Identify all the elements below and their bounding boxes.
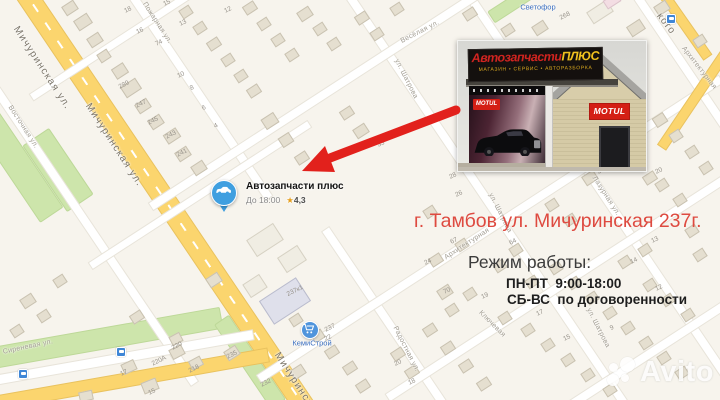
building [246,223,284,257]
building [654,178,670,193]
building [462,287,478,302]
store-marker[interactable] [211,180,237,206]
photo-ground [458,167,646,171]
building [294,150,310,165]
motul-logo: MOTUL [473,99,500,110]
building [78,390,94,400]
building [259,277,311,324]
map-canvas[interactable]: 1518131612742892472452432411086433268562… [0,0,720,400]
building [540,338,556,353]
building [444,303,460,318]
building [86,32,104,49]
building [560,353,576,368]
house-number: 13 [650,235,660,244]
marker-title[interactable]: Автозапчасти плюс [246,181,344,192]
photo-downspout [545,86,553,171]
building [339,105,355,120]
building [233,69,249,84]
building [206,36,222,51]
avito-watermark: Avito [604,354,720,398]
building [73,13,93,32]
avito-wordmark: Avito [640,356,714,389]
building [178,5,194,20]
house-number: 26 [454,189,464,198]
building [270,33,286,48]
address-text: г. Тамбов ул. Мичуринская 237г. [414,210,702,233]
house-number: 9 [609,324,615,332]
building [111,62,129,80]
building [326,37,342,52]
schedule-weekend: СБ-ВС по договоренности [507,292,687,307]
building [520,323,536,338]
svetofor-poi-label[interactable]: Светофор [520,3,555,12]
avito-logo-dot [607,374,619,386]
avito-logo-dot [609,363,618,372]
building [698,161,714,176]
building [389,2,405,17]
building [277,245,307,273]
house-number: 13 [178,18,188,27]
street-label: ул. Шатрова [393,58,419,100]
house-number: 15 [562,333,572,342]
building [242,0,258,15]
building [284,48,300,63]
building [626,19,646,38]
marker-hours: До 18:00 [246,195,280,205]
house-number: 33 [376,139,386,148]
marker-rating: 4,3 [294,195,306,205]
bus-stop-icon[interactable] [666,14,676,24]
bus-stop-icon[interactable] [18,369,28,379]
star-icon: ★ [286,195,294,205]
avito-logo-dot [620,357,635,372]
building [692,248,708,263]
motul-wall-sign: MOTUL [589,103,630,120]
building [684,145,700,160]
house-number: 17 [535,308,545,317]
building [352,123,370,140]
suv-silhouette [471,128,543,161]
building [500,23,516,38]
building [312,22,328,37]
bus-stop-icon[interactable] [116,347,126,357]
kemistroy-poi-icon[interactable] [301,321,319,339]
building [296,6,314,23]
house-number: 19 [480,291,490,300]
photo-door [599,126,630,172]
house-number: 20 [654,166,664,175]
photo-ad-poster: MOTUL [469,86,547,163]
building [342,360,358,375]
house-number: 14 [629,256,639,265]
storefront-photo: АвтозапчастиПЛЮС МАГАЗИН • СЕРВИС • АВТО… [457,40,647,172]
building [192,21,208,36]
building [220,53,236,68]
building [476,376,492,391]
house-number: 12 [223,5,233,14]
building [355,378,371,393]
avito-logo-dot [621,374,629,382]
schedule-weekdays: ПН-ПТ 9:00-18:00 [506,276,621,291]
building [19,293,37,310]
building [9,324,25,339]
building [422,322,438,337]
building [458,358,474,373]
house-number: 20 [393,358,403,367]
building [61,0,79,16]
building [52,274,68,289]
building [620,321,636,336]
house-number: 268 [559,10,572,21]
street-label: Весёлая ул. [400,19,441,44]
building [256,17,272,32]
schedule-title: Режим работы: [468,252,591,273]
poster-logo-band [469,86,547,95]
marker-subtitle: До 18:00★4,3 [246,195,306,206]
building [36,309,52,324]
building [531,20,549,37]
banner-subtitle: МАГАЗИН • СЕРВИС • АВТОРАЗБОРКА [469,65,602,74]
building [580,368,596,383]
building [602,306,618,321]
building [242,274,267,298]
house-number: 28 [448,171,458,180]
kemistroy-poi-label[interactable]: КемиСтрой [292,339,331,348]
building [246,83,262,98]
photo-banner: АвтозапчастиПЛЮС МАГАЗИН • СЕРВИС • АВТО… [468,47,604,82]
house-number: 18 [123,5,133,14]
